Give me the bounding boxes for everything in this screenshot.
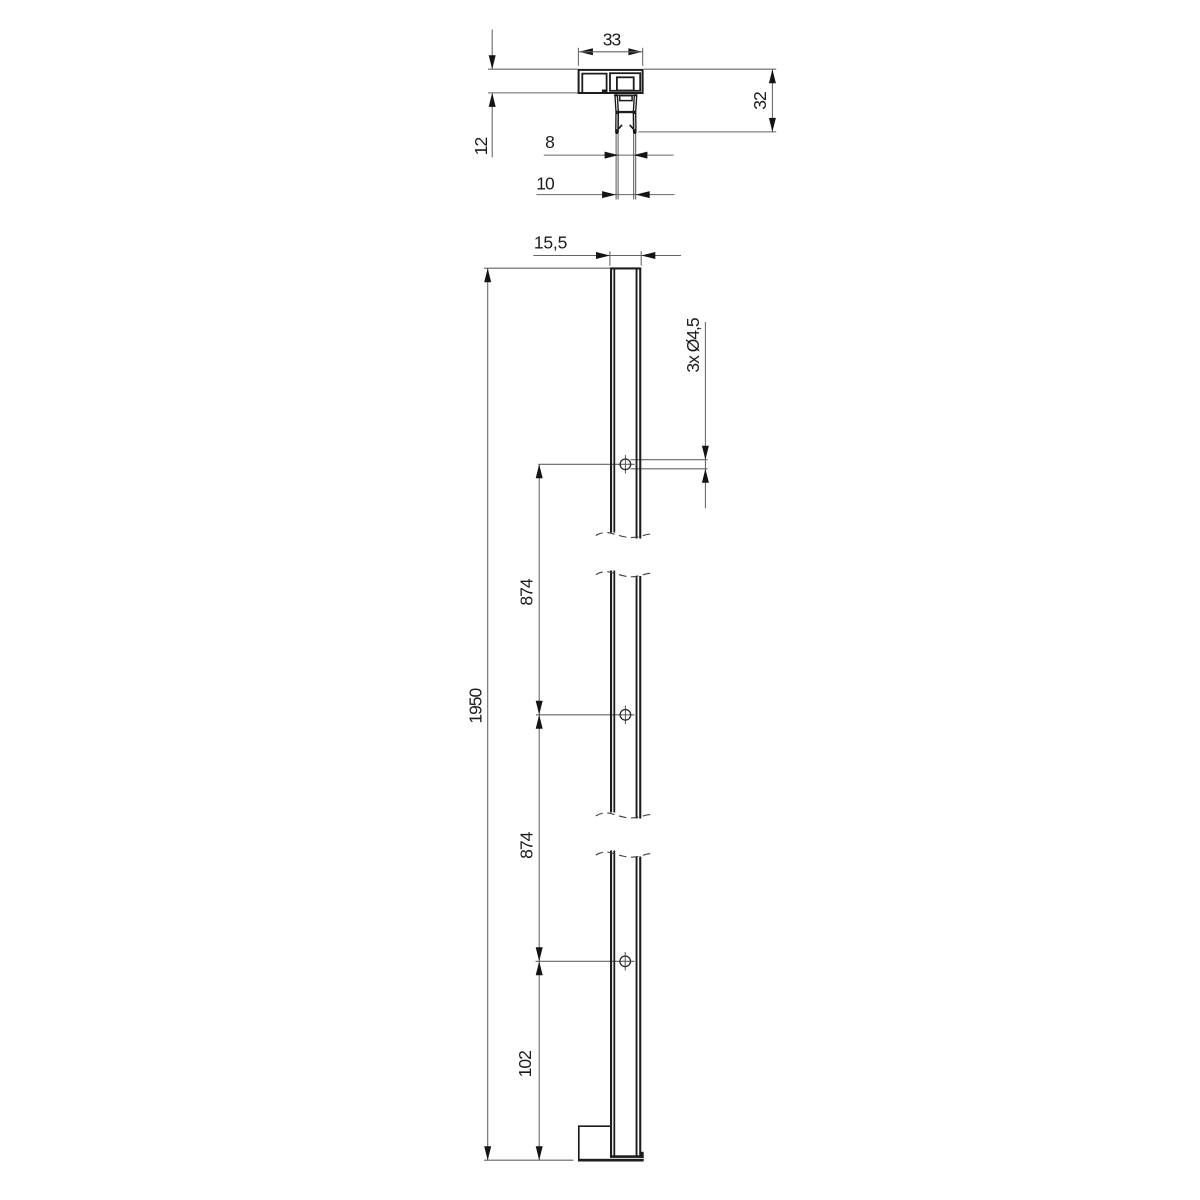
svg-text:8: 8 bbox=[545, 132, 554, 152]
svg-text:874: 874 bbox=[516, 578, 536, 605]
svg-text:874: 874 bbox=[516, 831, 536, 858]
svg-text:102: 102 bbox=[515, 1051, 535, 1077]
svg-text:12: 12 bbox=[471, 138, 491, 156]
svg-text:3x Ø4,5: 3x Ø4,5 bbox=[683, 318, 703, 373]
svg-text:32: 32 bbox=[750, 92, 770, 110]
svg-text:1950: 1950 bbox=[465, 687, 485, 723]
svg-text:33: 33 bbox=[603, 30, 621, 50]
svg-text:10: 10 bbox=[536, 174, 555, 194]
svg-text:15,5: 15,5 bbox=[534, 233, 567, 253]
